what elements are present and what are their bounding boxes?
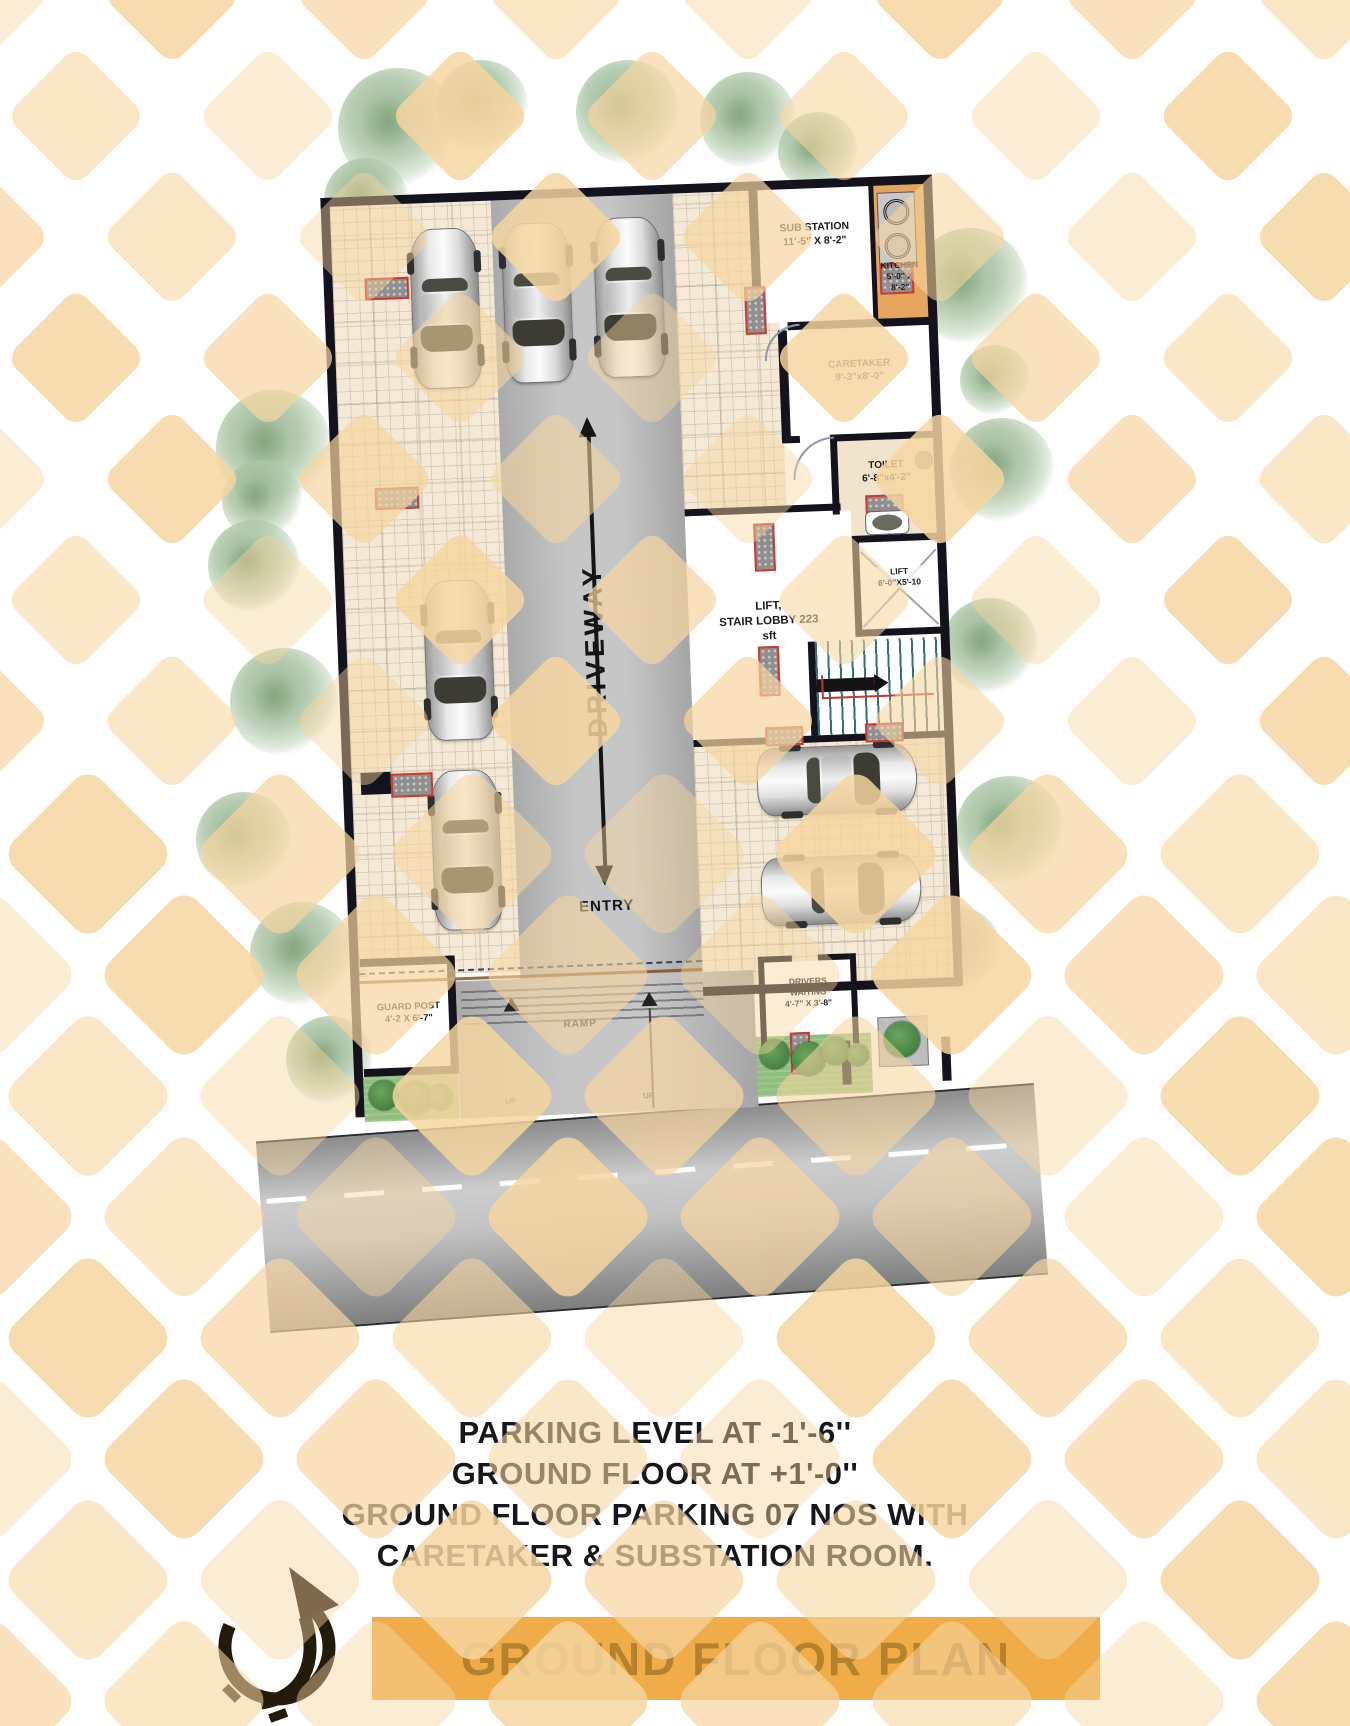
note-line: GROUND FLOOR PARKING 07 NOS WITH [275,1494,1035,1535]
north-compass-icon [205,1553,355,1725]
tree [230,648,338,756]
tree [950,418,1054,522]
stair-direction-arrow [874,674,889,693]
column [765,726,804,746]
stair-lobby-label: LIFT, STAIR LOBBY 223 sft [688,596,850,647]
fence-post [941,1037,952,1081]
wall-pier [360,772,391,795]
toilet-label: TOILET6'-8"x4'-2" [838,457,935,487]
car [593,217,665,377]
lift-label: LIFT6'-0"X5'-10 [860,565,939,590]
note-line: CARETAKER & SUBSTATION ROOM. [275,1535,1035,1576]
driveway-arrowhead-up [578,417,597,438]
column [744,286,767,335]
car [761,854,921,926]
guard-post-label: GUARD POST4'-2 X 6'-7" [367,1000,450,1028]
car [410,228,482,388]
tree [222,460,302,540]
tree [942,598,1038,694]
car [430,770,502,930]
tree [250,902,354,1006]
road-centerline [266,1141,1032,1204]
column [753,523,776,572]
column [390,772,433,798]
car [757,744,917,816]
substation-label: SUB STATION11'-5" X 8'-2" [759,219,871,251]
tree [196,792,292,888]
column [865,722,904,742]
tree [576,60,680,164]
drivers-waiting-label: DRIVERS WAITING 4'-7" X 3'-8" [765,974,852,1010]
tree [436,60,528,152]
column [758,646,781,697]
tree [960,345,1030,415]
car [423,580,495,740]
note-line: GROUND FLOOR AT +1'-0'' [275,1453,1035,1494]
ground-floor-plan: DRIVEWAY ENTRY RAMP UP UP SUB STATION11'… [320,175,967,1130]
floor-plan-sheet: DRIVEWAY ENTRY RAMP UP UP SUB STATION11'… [0,0,1350,1726]
column [375,487,420,511]
toilet-wc [865,510,910,536]
up-label: UP [643,1091,654,1100]
stair-landing-band [816,677,874,692]
plan-notes: PARKING LEVEL AT -1'-6'' GROUND FLOOR AT… [275,1412,1035,1576]
car [502,223,574,383]
note-line: PARKING LEVEL AT -1'-6'' [275,1412,1035,1453]
driveway-arrowhead-down [595,865,614,886]
column [364,277,409,301]
tree [956,776,1064,884]
ramp-chevron [503,997,520,1012]
kitchen-label: KITCHEN 5'-0" X 8'-2" [867,259,932,295]
title-banner: GROUND FLOOR PLAN [372,1617,1100,1700]
sheet-title: GROUND FLOOR PLAN [461,1632,1011,1686]
stove [877,191,918,264]
up-label: UP [505,1096,516,1105]
ramp-chevron [641,992,658,1007]
caretaker-label: CARETAKER9'-3"x8'-0" [788,355,931,386]
